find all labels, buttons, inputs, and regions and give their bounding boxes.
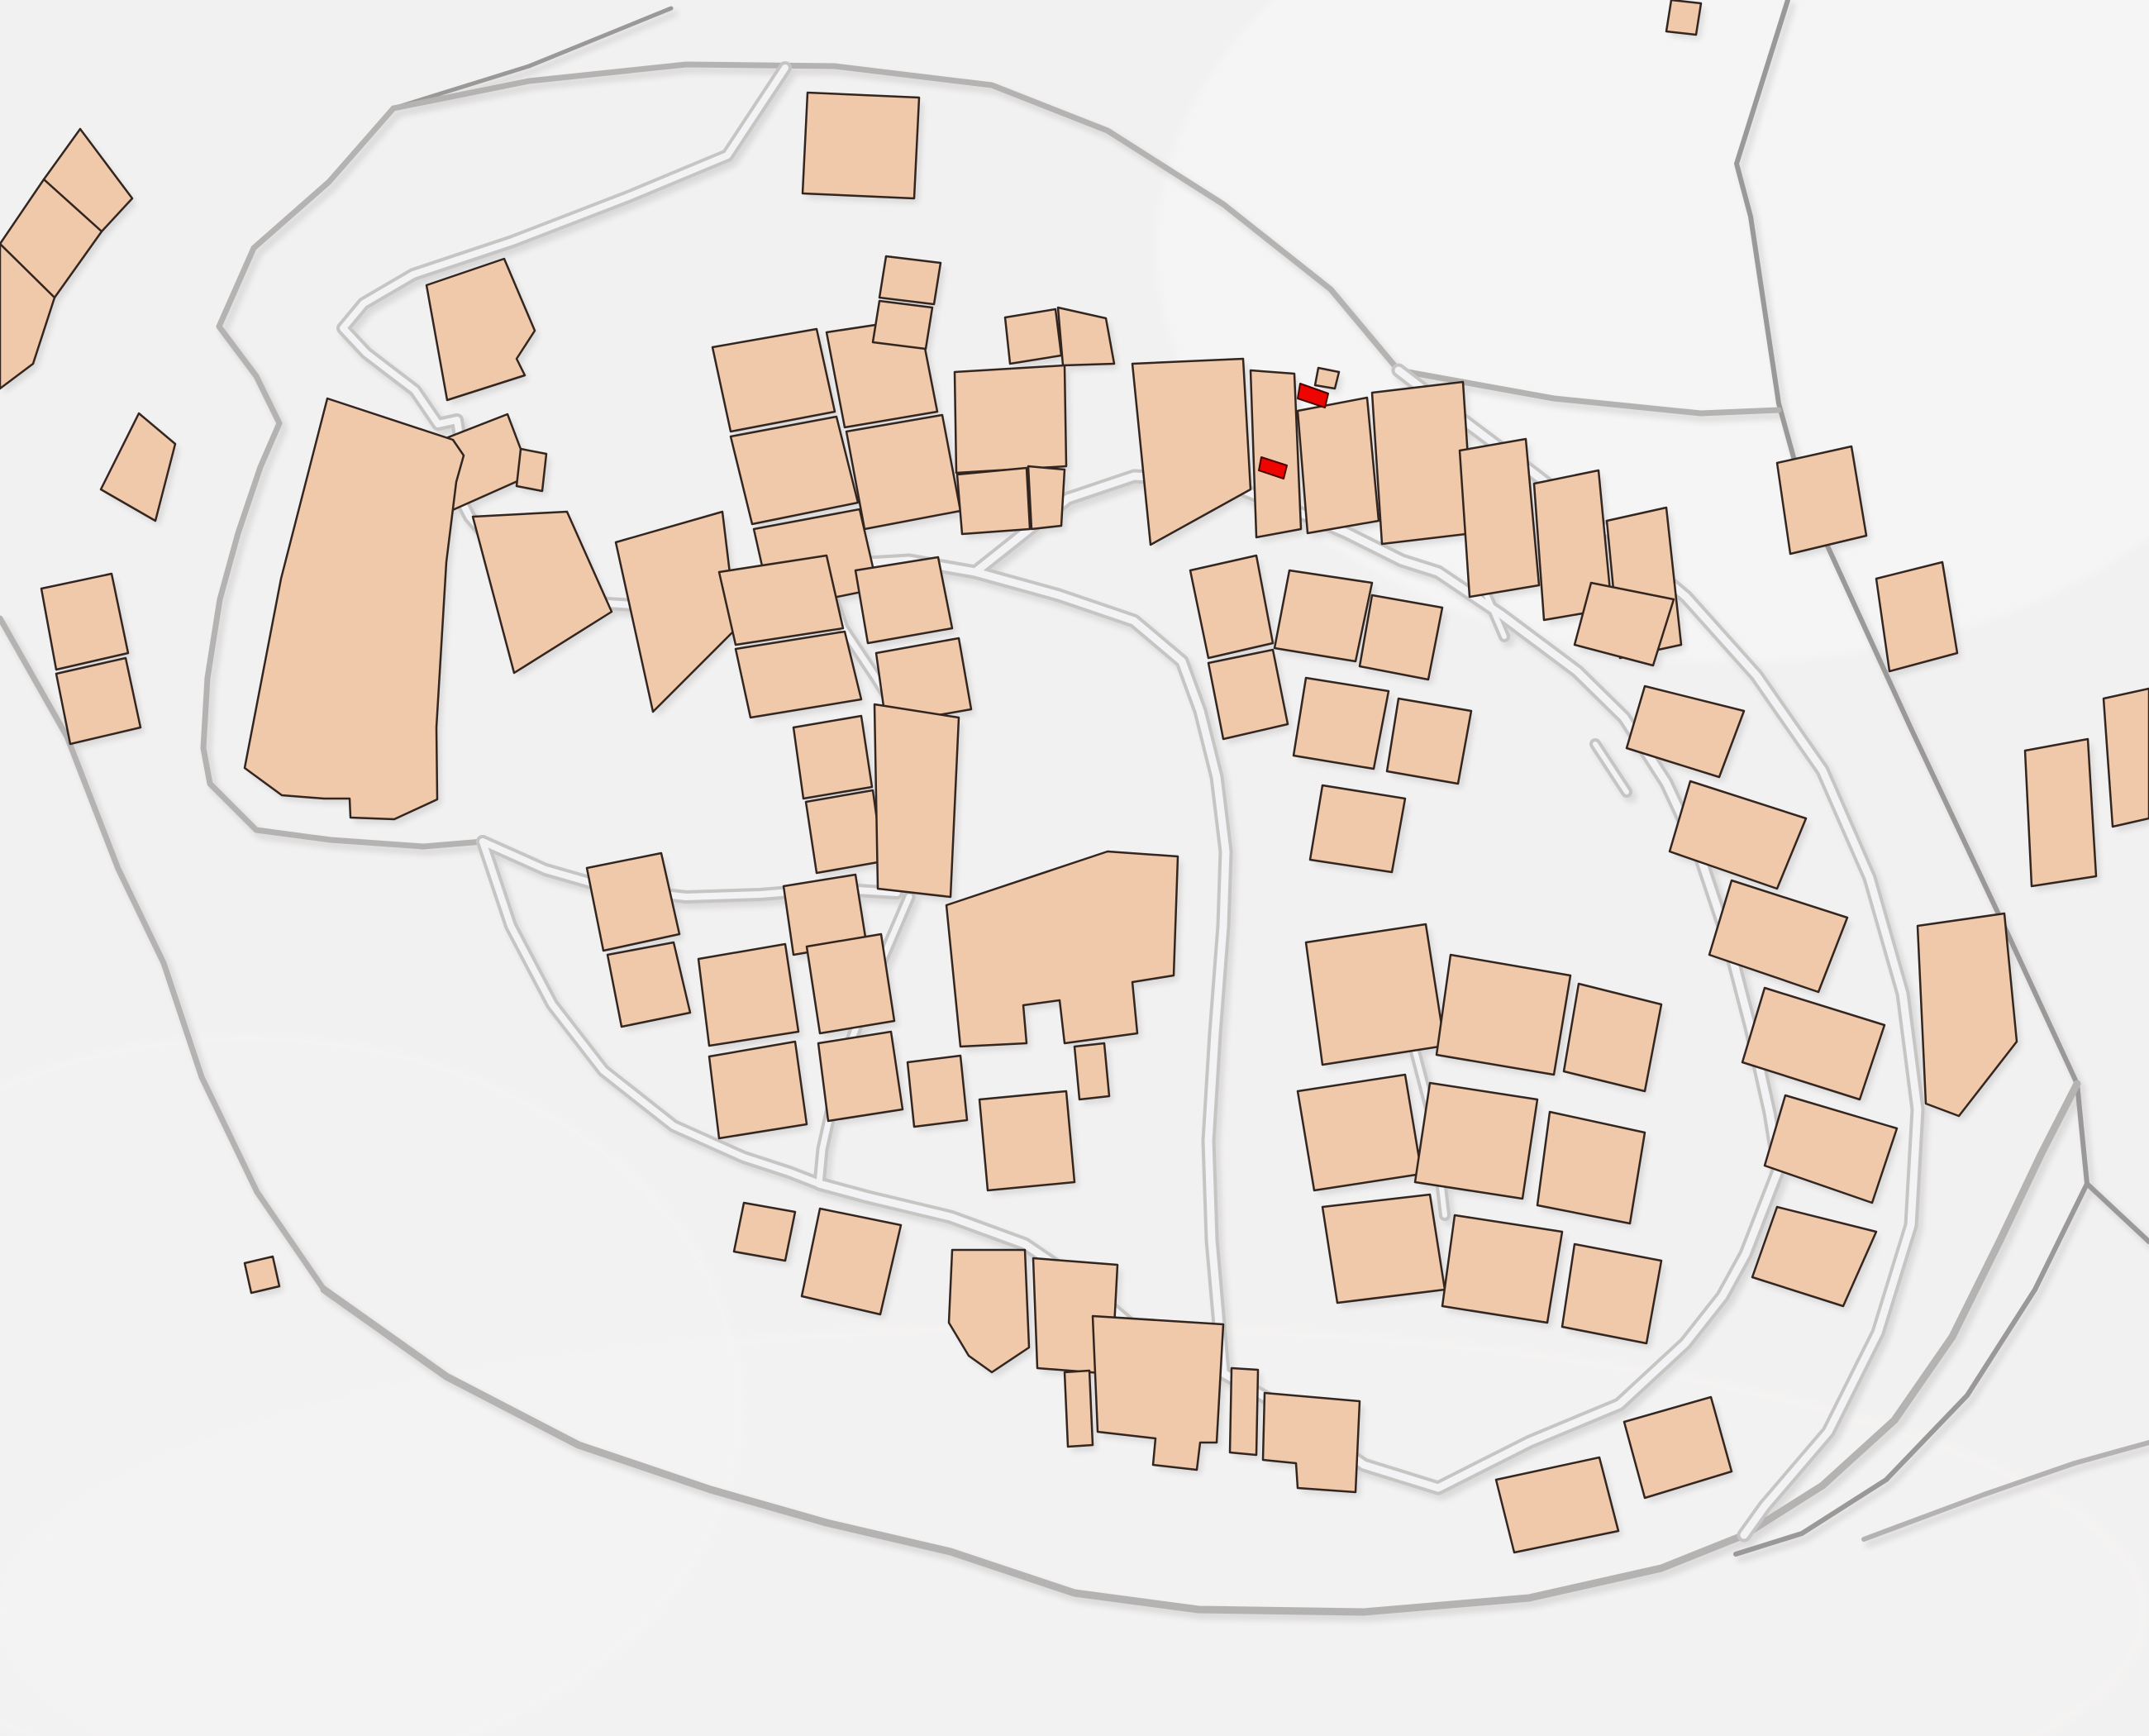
- building-27[interactable]: [1028, 466, 1065, 529]
- building-76[interactable]: [1298, 1075, 1422, 1190]
- building-23[interactable]: [1005, 309, 1061, 364]
- building-57[interactable]: [855, 557, 952, 643]
- building-75[interactable]: [1564, 984, 1661, 1091]
- building-70[interactable]: [1074, 1043, 1109, 1099]
- building-6[interactable]: [56, 658, 141, 744]
- building-78[interactable]: [1537, 1112, 1645, 1223]
- building-59[interactable]: [793, 716, 872, 799]
- building-64[interactable]: [698, 944, 798, 1046]
- building-72[interactable]: [979, 1091, 1074, 1190]
- building-7[interactable]: [245, 1257, 279, 1293]
- building-55[interactable]: [719, 556, 843, 645]
- building-42[interactable]: [1360, 595, 1442, 680]
- building-77[interactable]: [1415, 1083, 1537, 1199]
- building-19[interactable]: [846, 415, 960, 529]
- building-26[interactable]: [957, 468, 1030, 534]
- building-44[interactable]: [1387, 699, 1471, 784]
- building-41[interactable]: [1275, 570, 1372, 661]
- building-73[interactable]: [1306, 924, 1445, 1065]
- building-33[interactable]: [1460, 439, 1539, 597]
- building-65[interactable]: [709, 1042, 807, 1138]
- building-36[interactable]: [1777, 446, 1866, 554]
- building-90[interactable]: [1230, 1368, 1258, 1455]
- building-14[interactable]: [803, 93, 919, 198]
- building-45[interactable]: [1310, 785, 1405, 872]
- building-67[interactable]: [587, 853, 679, 951]
- building-88[interactable]: [1065, 1371, 1093, 1447]
- building-39[interactable]: [2025, 739, 2096, 886]
- building-66[interactable]: [818, 1032, 903, 1121]
- building-30[interactable]: [1298, 398, 1379, 533]
- building-25[interactable]: [955, 365, 1066, 473]
- building-74[interactable]: [1437, 955, 1570, 1075]
- building-5[interactable]: [41, 574, 128, 670]
- building-32[interactable]: [1372, 382, 1473, 544]
- building-79[interactable]: [1322, 1195, 1445, 1303]
- building-62[interactable]: [874, 704, 959, 897]
- building-29[interactable]: [1251, 370, 1301, 537]
- map-viewport[interactable]: [0, 0, 2149, 1736]
- building-81[interactable]: [1562, 1244, 1661, 1343]
- building-37[interactable]: [1876, 562, 1957, 671]
- building-63[interactable]: [807, 934, 894, 1033]
- building-15[interactable]: [1666, 0, 1701, 35]
- building-22[interactable]: [873, 301, 932, 349]
- building-80[interactable]: [1442, 1215, 1562, 1323]
- building-21[interactable]: [879, 256, 941, 304]
- building-31[interactable]: [1315, 368, 1339, 389]
- building-85[interactable]: [734, 1203, 795, 1261]
- building-10[interactable]: [517, 449, 546, 491]
- building-47[interactable]: [1208, 650, 1288, 739]
- building-16[interactable]: [712, 329, 835, 432]
- building-38[interactable]: [2104, 689, 2149, 827]
- map-canvas[interactable]: [0, 0, 2149, 1736]
- building-71[interactable]: [908, 1056, 967, 1127]
- building-60[interactable]: [806, 790, 883, 873]
- building-43[interactable]: [1294, 678, 1389, 769]
